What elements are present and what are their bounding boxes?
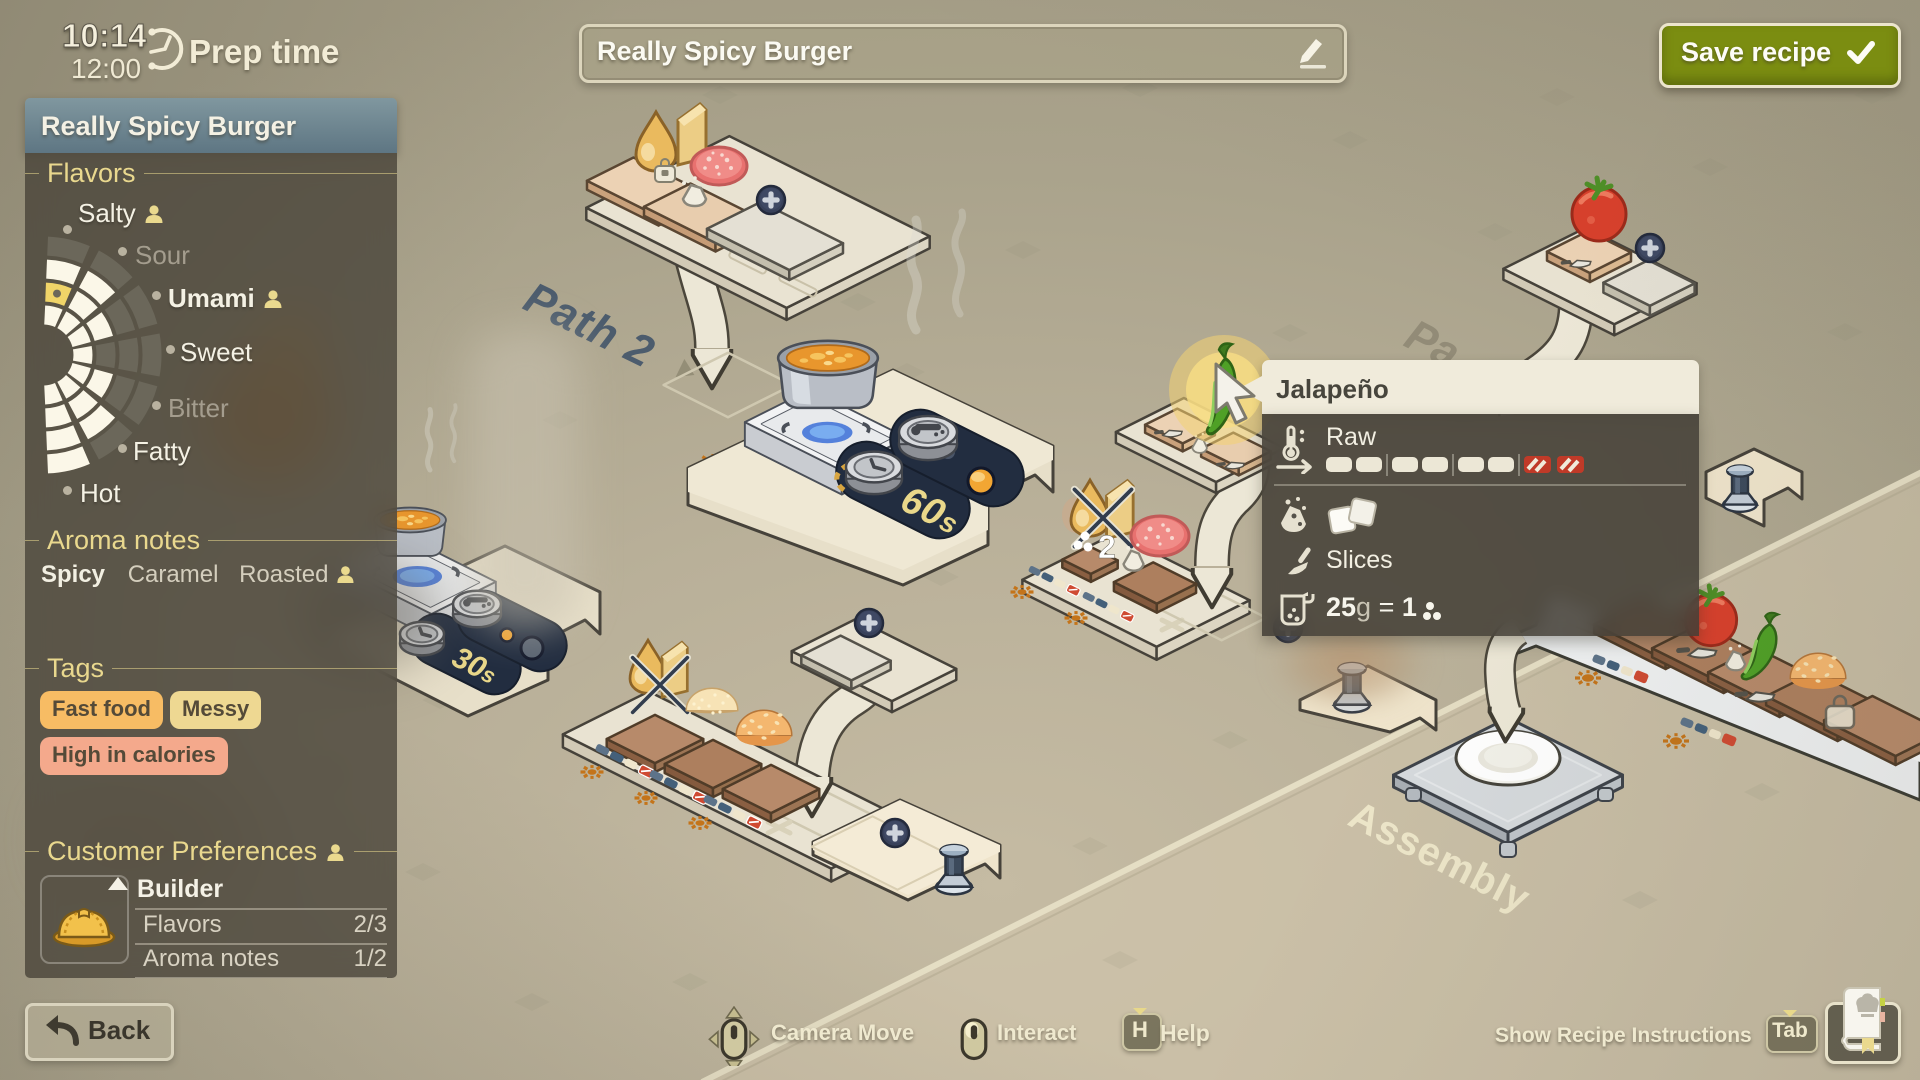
svg-text:2: 2 — [1098, 529, 1116, 565]
